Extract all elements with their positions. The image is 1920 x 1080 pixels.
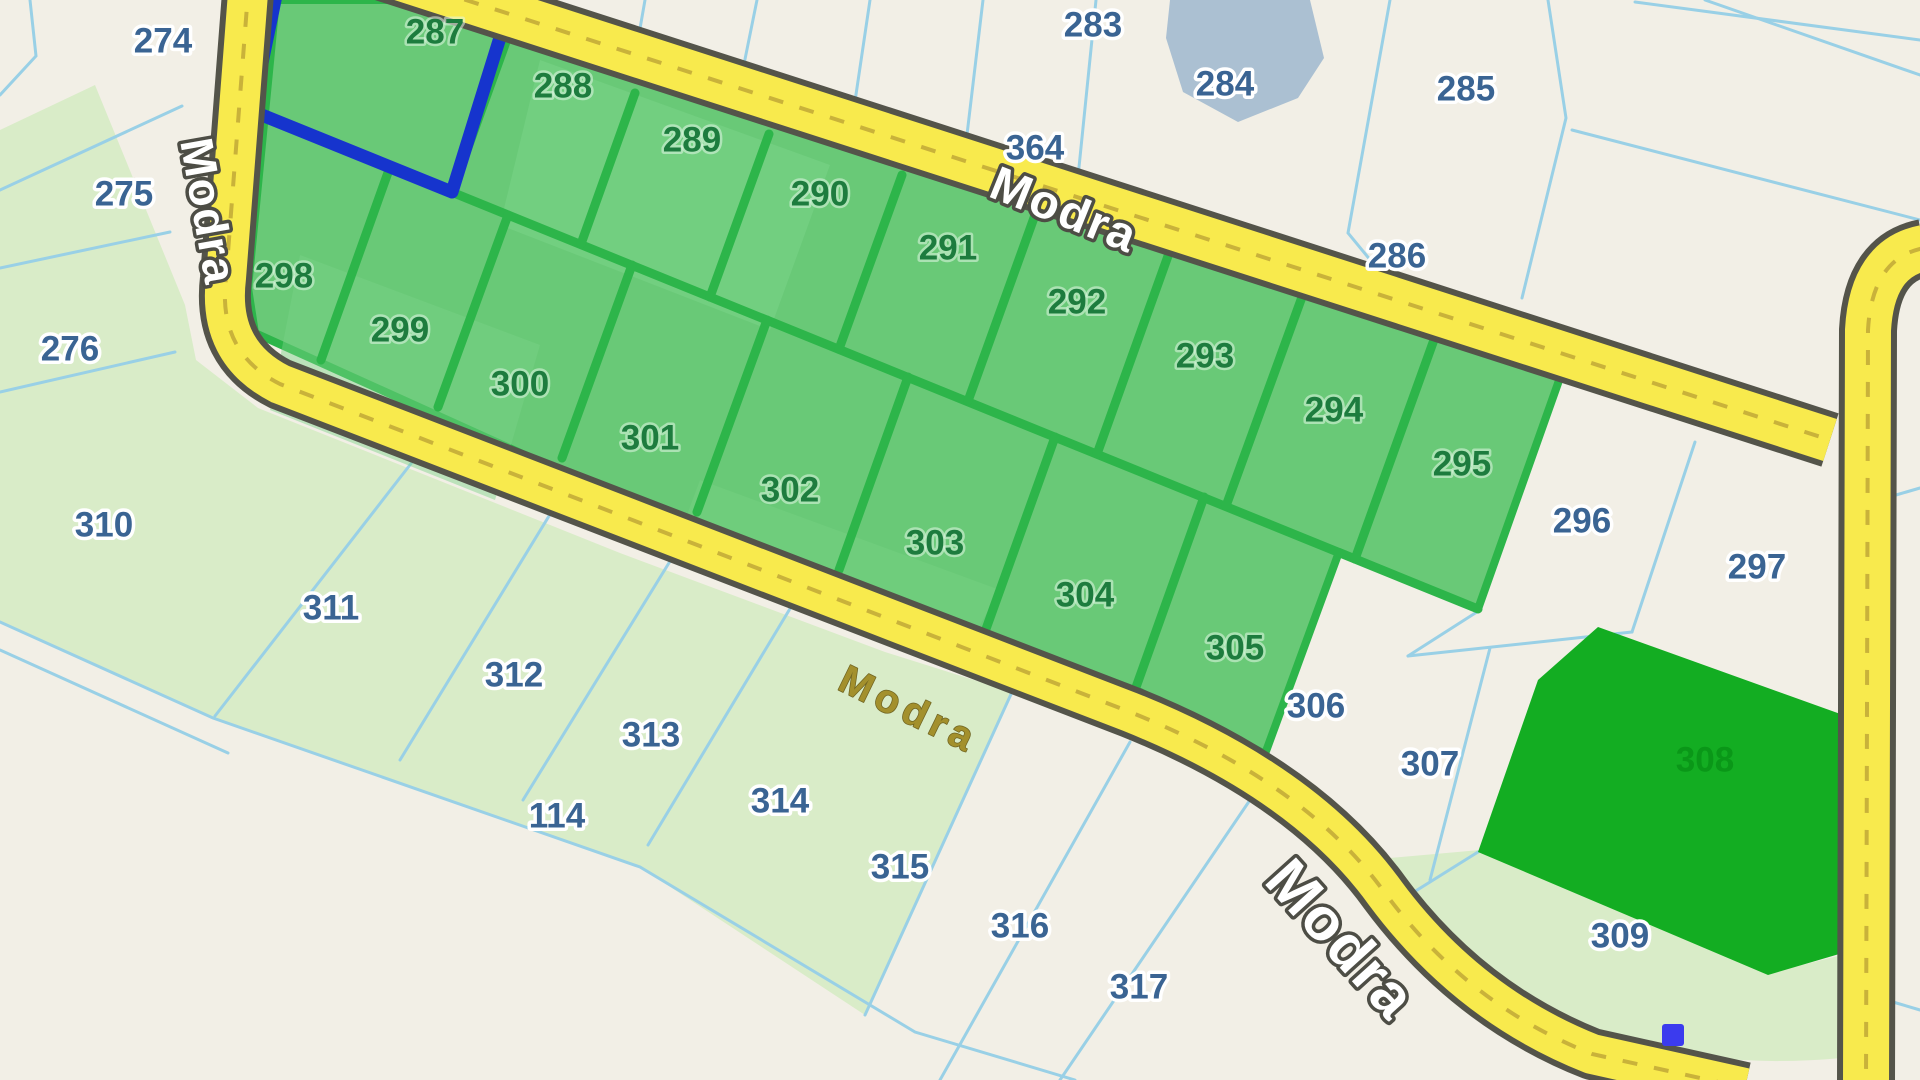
parcel-label-293: 293 [1176,336,1234,375]
parcel-label-316: 316 [991,906,1049,945]
parcel-label-300: 300 [491,364,549,403]
parcel-label-296: 296 [1553,501,1611,540]
parcel-label-299: 299 [371,310,429,349]
parcel-label-311: 311 [303,588,359,627]
parcel-label-285: 285 [1437,69,1495,108]
parcel-label-284: 284 [1196,64,1255,103]
parcel-label-286: 286 [1368,236,1426,275]
parcel-label-312: 312 [485,655,543,694]
parcel-label-305: 305 [1206,628,1264,667]
parcel-label-309: 309 [1591,916,1649,955]
parcel-label-295: 295 [1433,444,1491,483]
parcel-label-308: 308 [1676,740,1734,779]
parcel-label-289: 289 [663,120,721,159]
parcel-label-274: 274 [134,21,193,60]
parcel-label-276: 276 [41,329,99,368]
parcel-label-287: 287 [406,12,464,51]
parcel-label-306: 306 [1287,686,1345,725]
parcel-label-314: 314 [751,781,810,820]
parcel-label-310: 310 [75,505,133,544]
parcel-label-364: 364 [1006,128,1065,167]
parcel-label-292: 292 [1048,282,1106,321]
parcel-label-301: 301 [621,418,679,457]
parcel-label-315: 315 [871,847,929,886]
parcel-label-294: 294 [1305,390,1364,429]
parcel-label-304: 304 [1056,575,1115,614]
parcel-label-291: 291 [919,228,977,267]
parcel-label-288: 288 [534,66,592,105]
parcel-label-302: 302 [761,470,819,509]
parcel-label-307: 307 [1401,744,1459,783]
parcel-label-303: 303 [906,523,964,562]
parcel-label-298: 298 [255,256,313,295]
parcel-label-290: 290 [791,174,849,213]
parcel-label-317: 317 [1110,967,1168,1006]
parcel-label-297: 297 [1728,547,1786,586]
parcel-label-275: 275 [95,174,153,213]
parcel-label-283: 283 [1064,5,1122,44]
parcel-label-313: 313 [622,715,680,754]
cadastral-map[interactable]: ModraModraModraModra 2742752762832842852… [0,0,1920,1080]
parcel-label-114: 114 [529,796,586,835]
blue-marker[interactable] [1662,1024,1684,1046]
